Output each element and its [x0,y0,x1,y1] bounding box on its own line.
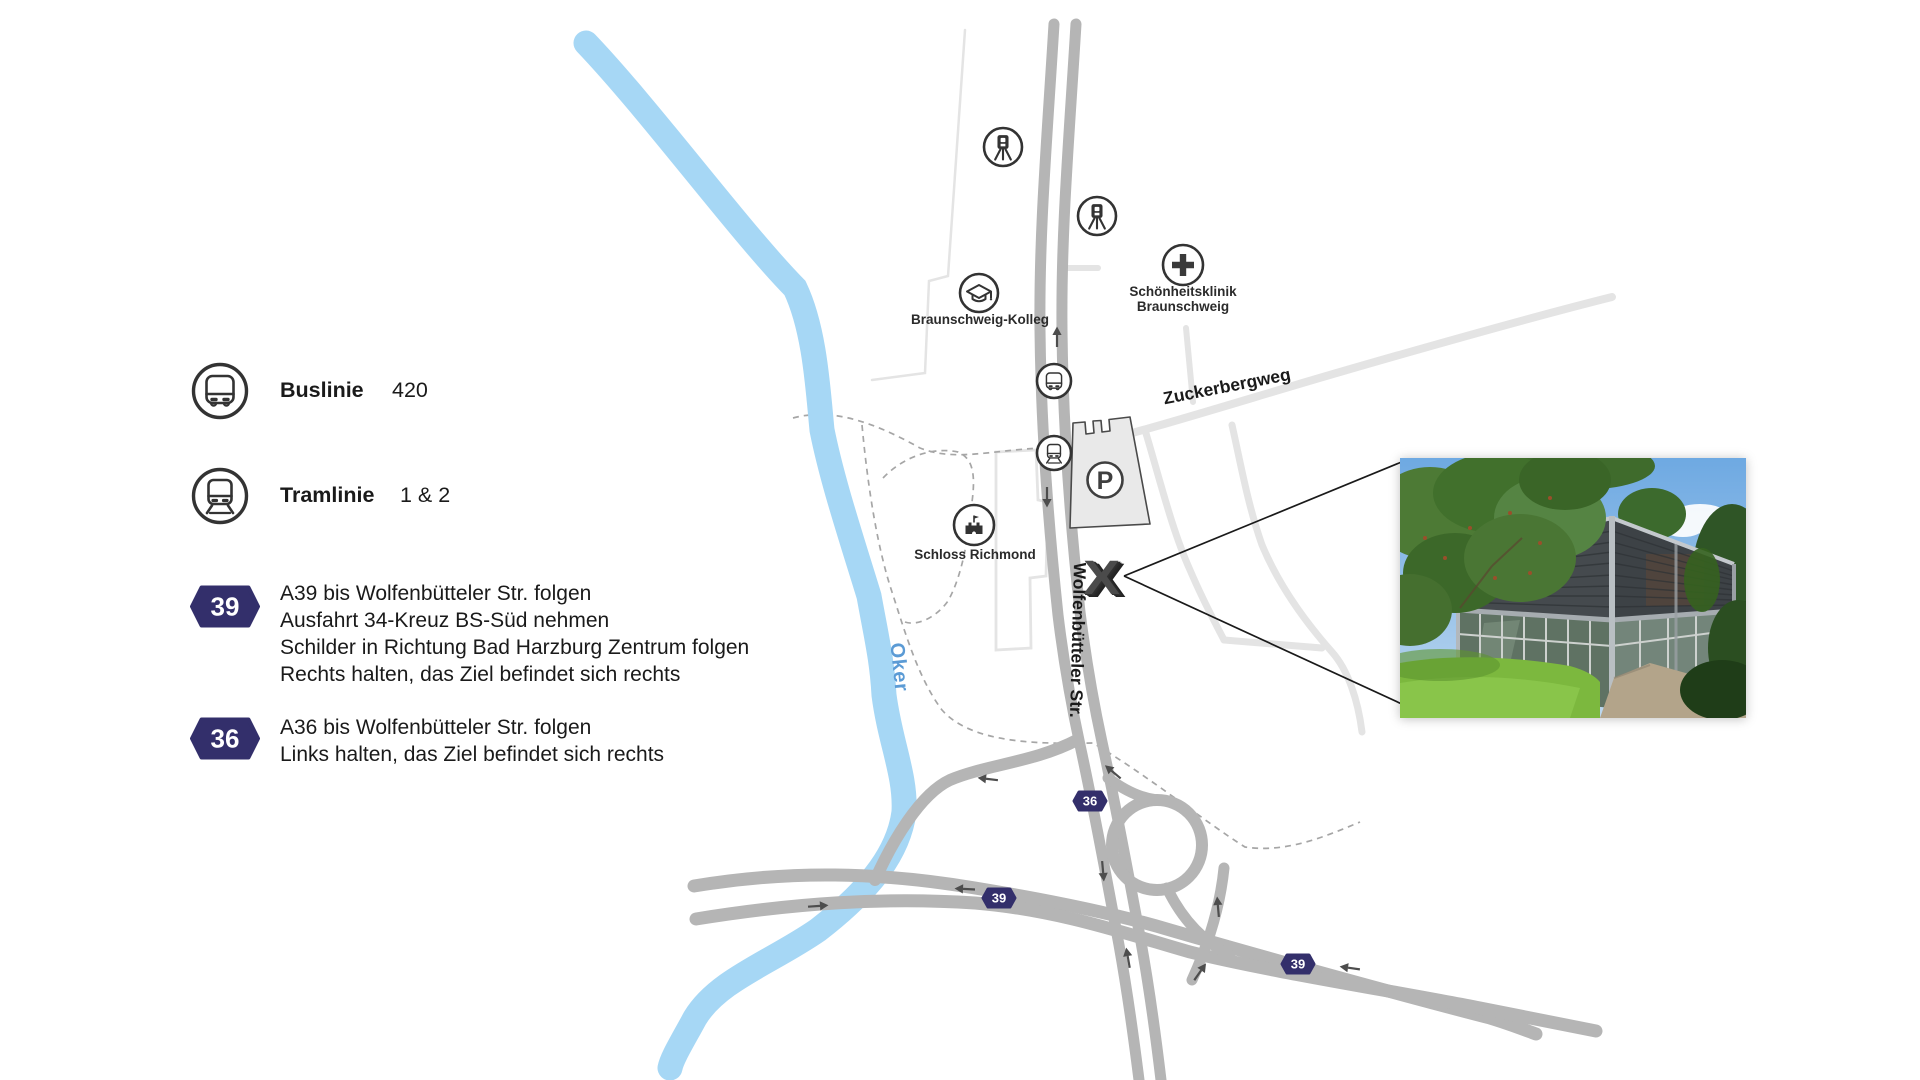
badge-36-map: 36 [1074,792,1106,810]
street-east-2 [1232,425,1362,732]
poi-klinik-label-2: Braunschweig [1137,299,1229,314]
poi-schoenheitsklinik: Schönheitsklinik Braunschweig [1129,245,1237,314]
a39-instruction-line: Schilder in Richtung Bad Harzburg Zentru… [280,634,749,661]
poi-richmond-label: Schloss Richmond [914,547,1036,562]
a39-instruction-line: A39 bis Wolfenbütteler Str. folgen [280,580,749,607]
a36-legend-badge: 36 [190,716,260,761]
bus-stop-icon [1037,364,1071,398]
surveyor-icon-1 [984,128,1022,166]
parking-icon-label: P [1097,467,1114,495]
poi-klinik-label-1: Schönheitsklinik [1129,284,1237,299]
poi-kolleg-label: Braunschweig-Kolleg [911,312,1049,327]
direction-map-page: Oker 36 39 [0,0,1920,1080]
a36-instruction-line: A36 bis Wolfenbütteler Str. folgen [280,714,664,741]
a39-instructions: A39 bis Wolfenbütteler Str. folgen Ausfa… [280,580,749,688]
street-zuckerbergweg [1078,297,1612,447]
tram-line-value: 1 & 2 [400,483,450,508]
street-east-1 [1145,430,1224,640]
a36-instruction-line: Links halten, das Ziel befindet sich rec… [280,741,664,768]
badge-39-east: 39 [1282,955,1314,973]
a39-badge-label: 39 [211,592,240,622]
badge-39-east-label: 39 [1291,957,1305,972]
tram-line-label: Tramlinie [280,483,374,508]
bus-line-label: Buslinie [280,378,364,403]
surveyor-icon-2 [1078,197,1116,235]
street-boundary-kolleg [872,30,965,380]
badge-39-west-label: 39 [992,891,1006,906]
tram-legend-icon [191,467,249,525]
badge-39-west: 39 [983,889,1015,907]
a36-badge-label: 36 [211,724,240,754]
destination-x-marker: X [1083,549,1120,605]
badge-36-label: 36 [1083,794,1097,809]
a39-legend-badge: 39 [190,584,260,629]
bus-legend-icon [191,362,249,420]
poi-braunschweig-kolleg: Braunschweig-Kolleg [911,274,1049,327]
bus-line-value: 420 [392,378,428,403]
a39-instruction-line: Ausfahrt 34-Kreuz BS-Süd nehmen [280,607,749,634]
tram-stop-icon [1037,436,1071,470]
building-photo [1400,458,1746,718]
a39-instruction-line: Rechts halten, das Ziel befindet sich re… [280,661,749,688]
a36-instructions: A36 bis Wolfenbütteler Str. folgen Links… [280,714,664,768]
